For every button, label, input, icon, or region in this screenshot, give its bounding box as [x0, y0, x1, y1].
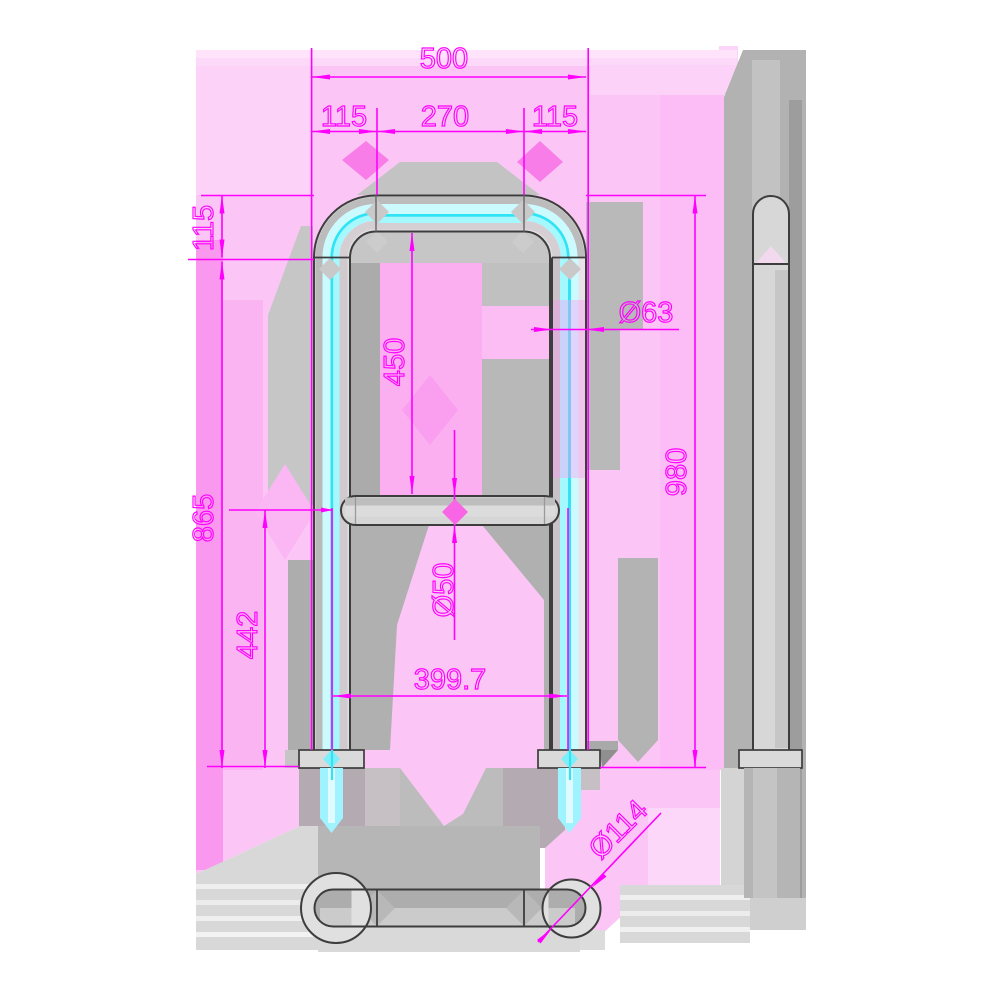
svg-text:Ø50: Ø50 [428, 563, 460, 618]
svg-text:270: 270 [421, 101, 469, 133]
svg-text:Ø63: Ø63 [619, 297, 674, 329]
svg-text:115: 115 [188, 205, 220, 251]
svg-text:399.7: 399.7 [414, 664, 487, 696]
svg-text:500: 500 [420, 43, 468, 75]
svg-text:115: 115 [532, 101, 578, 133]
svg-text:865: 865 [188, 494, 220, 542]
svg-text:980: 980 [661, 448, 693, 496]
svg-text:450: 450 [379, 338, 411, 386]
svg-text:442: 442 [232, 611, 264, 659]
svg-text:115: 115 [321, 101, 367, 133]
